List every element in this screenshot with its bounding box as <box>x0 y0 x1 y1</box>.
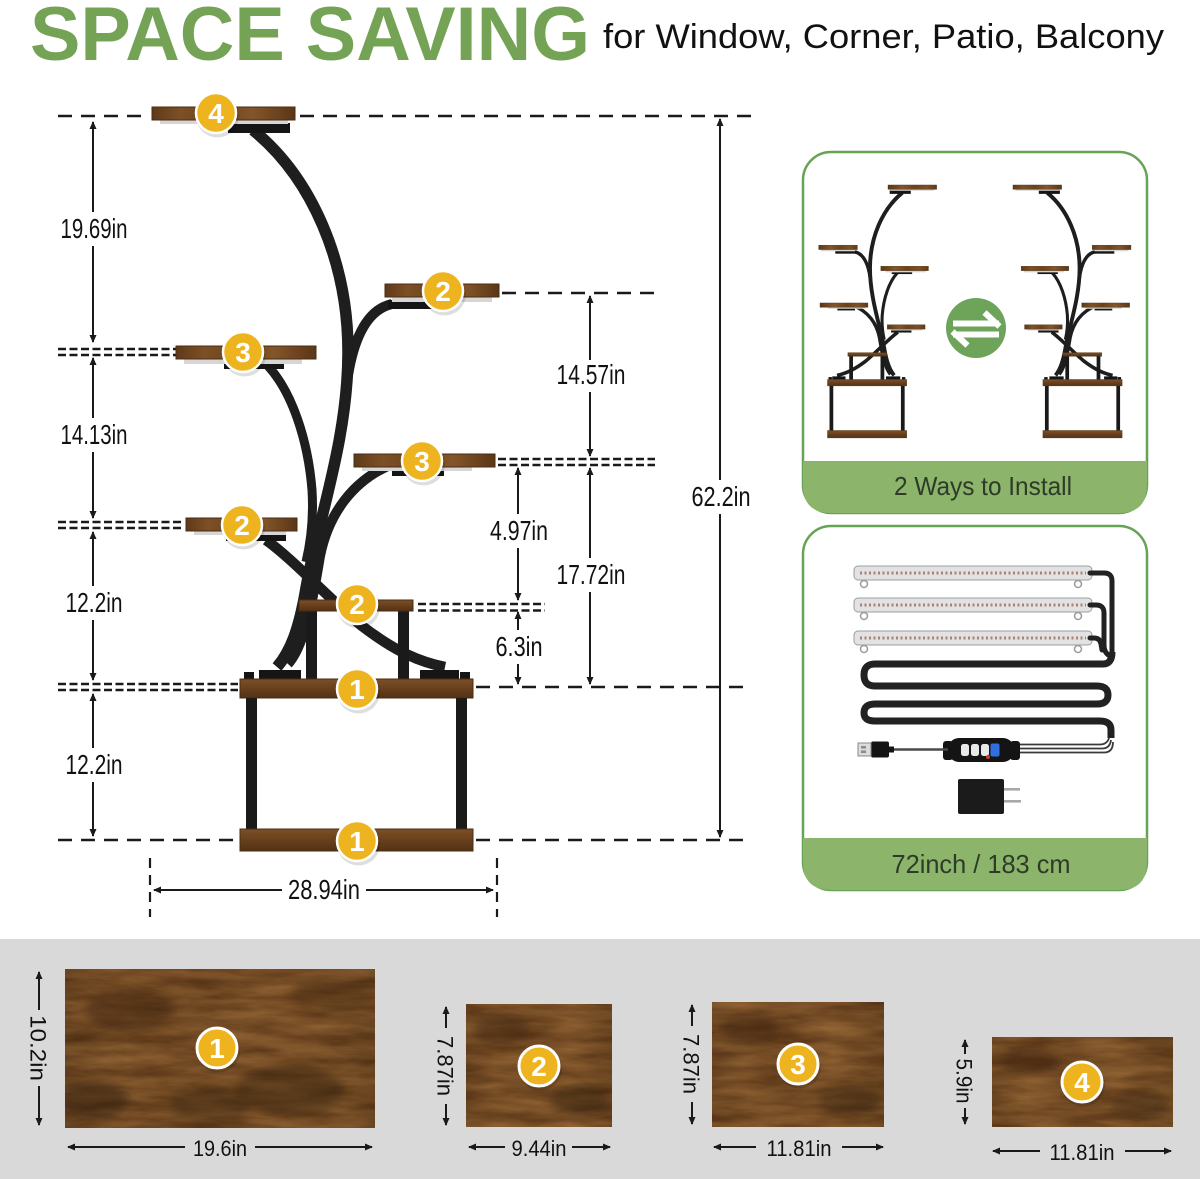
svg-text:14.57in: 14.57in <box>557 359 626 390</box>
svg-text:2: 2 <box>234 510 250 541</box>
svg-text:6.3in: 6.3in <box>496 631 543 662</box>
svg-text:10.2in: 10.2in <box>26 1015 51 1081</box>
svg-text:2: 2 <box>349 589 365 620</box>
svg-text:1: 1 <box>349 826 365 857</box>
svg-text:2: 2 <box>531 1051 547 1082</box>
svg-text:SPACE SAVING: SPACE SAVING <box>30 0 590 77</box>
svg-text:28.94in: 28.94in <box>288 874 360 905</box>
svg-text:3: 3 <box>235 337 251 368</box>
svg-text:4: 4 <box>208 98 224 129</box>
svg-text:3: 3 <box>790 1049 806 1080</box>
svg-text:1: 1 <box>209 1033 225 1064</box>
svg-text:62.2in: 62.2in <box>692 481 751 512</box>
svg-text:3: 3 <box>414 446 430 477</box>
svg-text:11.81in: 11.81in <box>767 1136 832 1161</box>
svg-text:9.44in: 9.44in <box>512 1136 567 1161</box>
svg-text:14.13in: 14.13in <box>61 419 128 450</box>
svg-text:19.6in: 19.6in <box>193 1136 247 1161</box>
svg-text:72inch / 183 cm: 72inch / 183 cm <box>892 849 1071 879</box>
svg-text:2 Ways to Install: 2 Ways to Install <box>894 471 1072 501</box>
svg-text:17.72in: 17.72in <box>557 559 626 590</box>
svg-text:12.2in: 12.2in <box>66 749 123 780</box>
svg-text:7.87in: 7.87in <box>679 1034 704 1094</box>
svg-text:11.81in: 11.81in <box>1050 1140 1115 1165</box>
svg-text:4: 4 <box>1074 1067 1090 1098</box>
svg-text:19.69in: 19.69in <box>61 213 128 244</box>
svg-text:for Window, Corner, Patio, Bal: for Window, Corner, Patio, Balcony <box>603 18 1164 56</box>
svg-text:1: 1 <box>349 674 365 705</box>
svg-text:5.9in: 5.9in <box>952 1059 977 1104</box>
svg-text:7.87in: 7.87in <box>433 1036 458 1096</box>
svg-text:4.97in: 4.97in <box>490 515 548 546</box>
svg-text:2: 2 <box>435 276 451 307</box>
svg-text:12.2in: 12.2in <box>66 587 123 618</box>
